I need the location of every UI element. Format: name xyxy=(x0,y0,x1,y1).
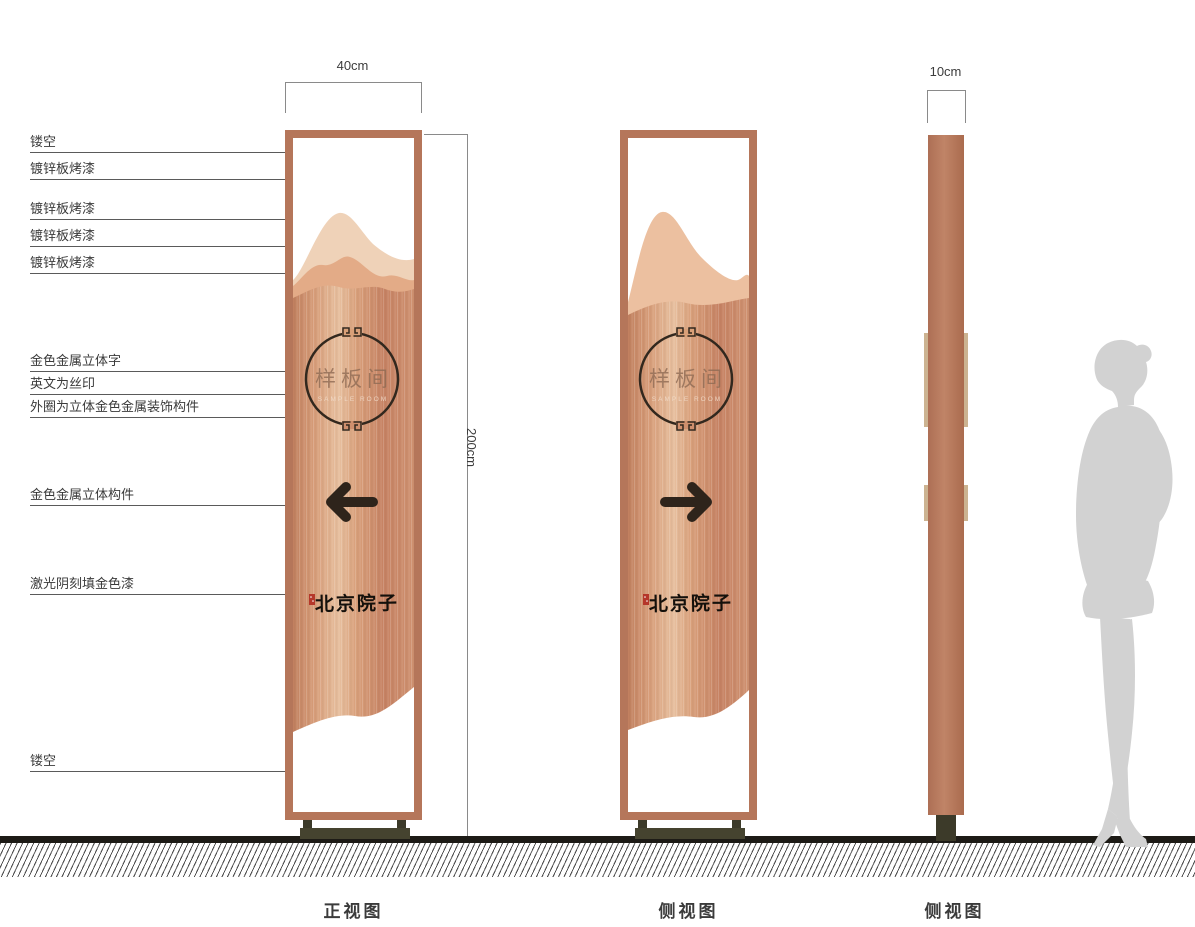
front-pillar-base-beam xyxy=(300,828,410,839)
annotation-english-silkscreen: 英文为丝印 xyxy=(30,376,95,392)
annotation-line xyxy=(30,505,328,506)
fret-ornament-bottom-icon xyxy=(342,421,362,430)
annotation-galvanized-paint-3: 镀锌板烤漆 xyxy=(30,228,95,244)
ground-line xyxy=(0,836,1195,843)
silhouette-head xyxy=(1095,340,1152,407)
annotation-line xyxy=(30,179,285,180)
dimension-line-height xyxy=(467,134,468,838)
dimension-front-width: 40cm xyxy=(285,58,420,73)
side-view-label-2: 侧视图 xyxy=(886,897,1023,922)
seal-detail xyxy=(646,600,648,602)
front-view-pillar: 样板间 SAMPLE ROOM 北京院子 xyxy=(285,130,422,820)
annotation-laser-engraved-gold: 激光阴刻填金色漆 xyxy=(30,576,134,592)
annotation-line xyxy=(30,152,307,153)
brushed-texture xyxy=(293,285,414,732)
dimension-side-width: 10cm xyxy=(927,64,964,79)
side-view-pillar: 样板间 SAMPLE ROOM 北京院子 xyxy=(620,130,757,820)
annotation-line xyxy=(30,594,305,595)
annotation-galvanized-paint-1: 镀锌板烤漆 xyxy=(30,161,95,177)
annotation-gold-metal-component: 金色金属立体构件 xyxy=(30,487,134,503)
fret-ornament-top-icon xyxy=(342,328,362,337)
ground-hatch xyxy=(0,843,1195,877)
silhouette-hip xyxy=(1082,579,1154,619)
annotation-outer-ring-gold-decor: 外圈为立体金色金属装饰构件 xyxy=(30,399,199,415)
dimension-height: 200cm xyxy=(464,428,479,467)
silhouette-foot-left xyxy=(1093,809,1118,847)
human-scale-silhouette xyxy=(1030,335,1180,875)
annotation-galvanized-paint-4: 镀锌板烤漆 xyxy=(30,255,95,271)
annotation-hollow-bottom: 镂空 xyxy=(30,753,56,769)
room-name-text: 样板间 xyxy=(649,368,727,391)
annotation-galvanized-paint-2: 镀锌板烤漆 xyxy=(30,201,95,217)
seal-detail xyxy=(312,600,314,602)
side-view-label-1: 侧视图 xyxy=(620,897,757,922)
room-name-text: 样板间 xyxy=(315,368,393,391)
brand-name-calligraphy: 北京院子 xyxy=(315,591,399,615)
annotation-line xyxy=(30,219,310,220)
dimension-tick-height xyxy=(424,134,467,135)
seal-detail xyxy=(644,596,646,598)
silhouette-foot-right xyxy=(1114,819,1148,847)
brand-name-calligraphy: 北京院子 xyxy=(649,591,733,615)
side-pillar-base-beam xyxy=(635,828,745,839)
annotation-line xyxy=(30,771,302,772)
annotation-line xyxy=(30,246,296,247)
dimension-bracket-front xyxy=(285,82,422,113)
fret-ornament-top-icon xyxy=(676,328,696,337)
annotation-line xyxy=(30,273,290,274)
profile-pillar-base xyxy=(936,815,956,841)
annotation-line xyxy=(30,417,320,418)
fret-ornament-bottom-icon xyxy=(676,421,696,430)
profile-pillar-column xyxy=(928,135,964,815)
annotation-gold-metal-letters: 金色金属立体字 xyxy=(30,353,121,369)
room-name-english-text: SAMPLE ROOM xyxy=(318,396,388,403)
seal-detail xyxy=(310,596,312,598)
room-name-english-text: SAMPLE ROOM xyxy=(652,396,722,403)
annotation-hollow-top: 镂空 xyxy=(30,134,56,150)
signage-design-drawing: 镂空 镀锌板烤漆 镀锌板烤漆 镀锌板烤漆 镀锌板烤漆 金色金属立体字 英文为丝印… xyxy=(0,0,1195,927)
dimension-bracket-side xyxy=(927,90,966,123)
front-view-label: 正视图 xyxy=(285,897,422,922)
